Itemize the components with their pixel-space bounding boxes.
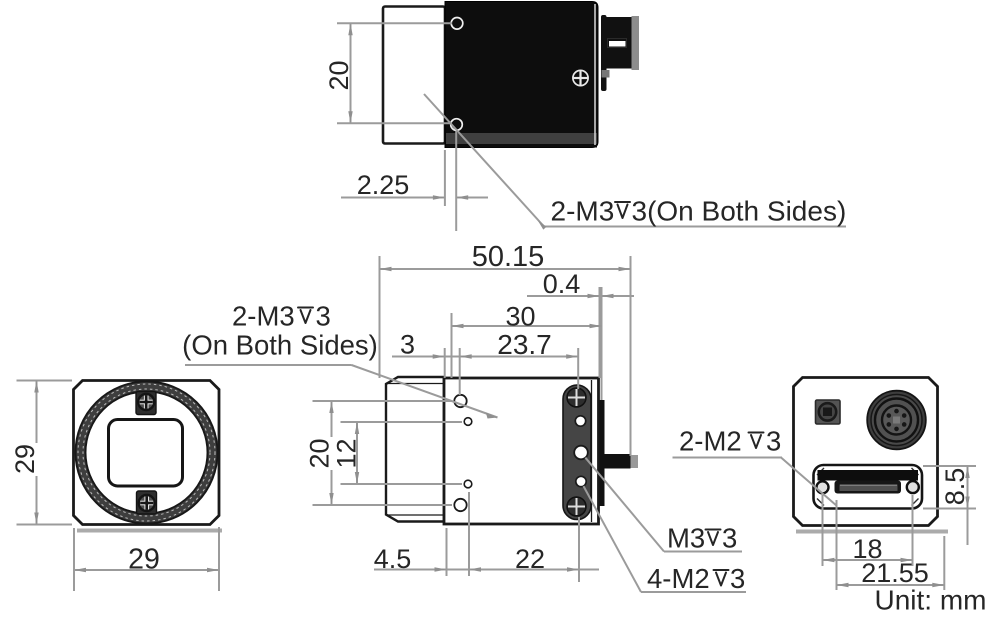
svg-text:23.7: 23.7 (497, 329, 552, 360)
svg-text:50.15: 50.15 (472, 241, 545, 273)
svg-text:M3: M3 (667, 523, 705, 554)
svg-text:4-M2: 4-M2 (647, 563, 710, 594)
svg-text:30: 30 (505, 302, 535, 332)
svg-text:3: 3 (400, 330, 415, 360)
svg-text:2-M2: 2-M2 (679, 426, 742, 457)
svg-text:0.4: 0.4 (543, 269, 581, 299)
svg-text:2.25: 2.25 (357, 170, 410, 200)
svg-text:(On Both Sides): (On Both Sides) (182, 330, 378, 361)
svg-text:29: 29 (10, 444, 40, 474)
svg-text:3(On Both Sides): 3(On Both Sides) (632, 196, 847, 227)
svg-text:20: 20 (305, 438, 335, 468)
svg-text:2-M3: 2-M3 (551, 196, 615, 227)
svg-text:Unit: mm: Unit: mm (875, 585, 987, 616)
svg-text:3: 3 (722, 523, 737, 554)
svg-text:3: 3 (766, 426, 781, 457)
svg-text:20: 20 (324, 60, 354, 90)
svg-text:29: 29 (128, 544, 160, 576)
svg-text:8.5: 8.5 (940, 468, 970, 506)
svg-text:12: 12 (332, 438, 362, 468)
svg-text:22: 22 (515, 544, 545, 574)
svg-text:4.5: 4.5 (374, 544, 412, 574)
svg-text:2-M3: 2-M3 (232, 301, 295, 332)
svg-text:3: 3 (730, 563, 745, 594)
svg-text:21.55: 21.55 (861, 558, 929, 588)
svg-text:3: 3 (316, 301, 331, 332)
